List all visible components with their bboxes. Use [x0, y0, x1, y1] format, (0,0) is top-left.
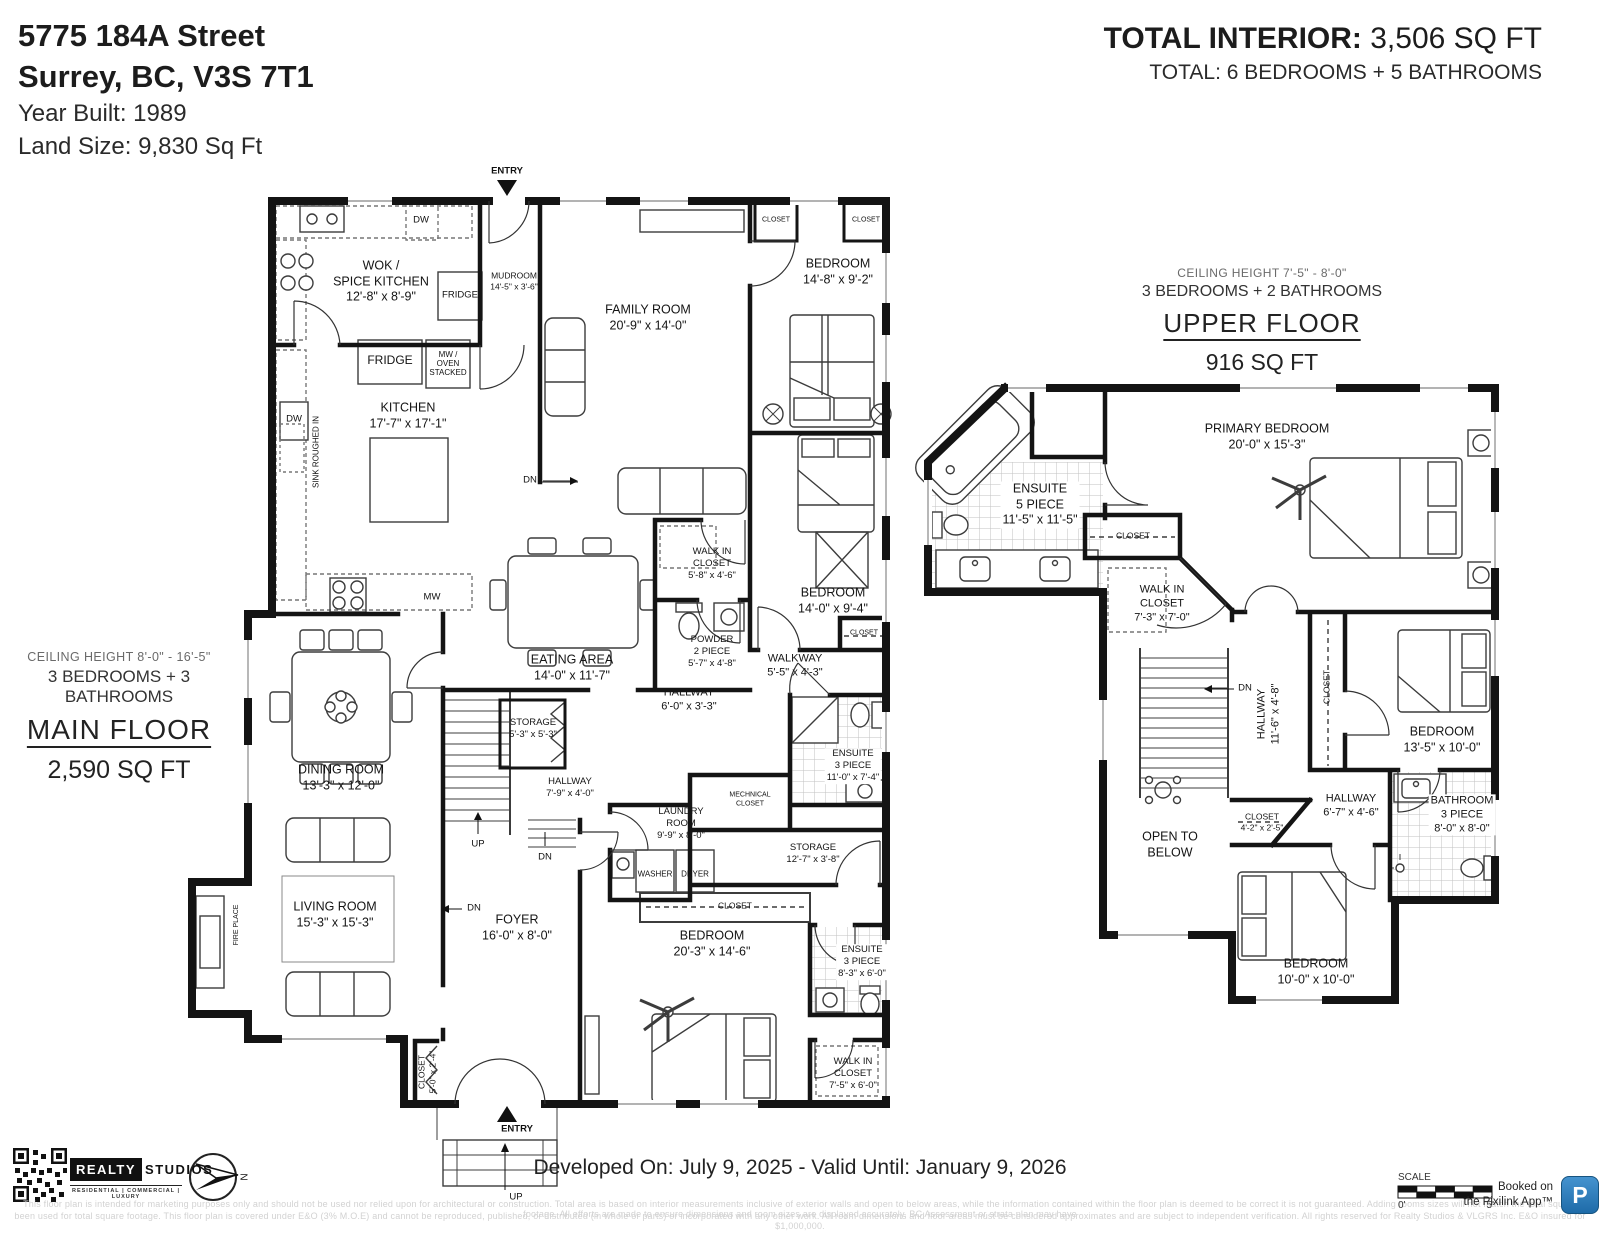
room-label: CLOSET [718, 901, 752, 912]
room-label: MECHNICAL CLOSET [729, 791, 770, 809]
fridge-label: FRIDGE [367, 354, 412, 368]
brand-tagline: RESIDENTIAL | COMMERCIAL | LUXURY [70, 1188, 182, 1200]
room-label: PRIMARY BEDROOM20'-0" x 15'-3" [1205, 421, 1330, 452]
room-label: STORAGE5'-3" x 5'-3" [509, 717, 557, 741]
room-label: CLOSET [852, 217, 880, 226]
brand-name-studios: STUDIOS [145, 1162, 213, 1177]
up-label: UP [471, 840, 484, 851]
room-label: EATING AREA14'-0" x 11'-7" [531, 652, 613, 683]
address-line1: 5775 184A Street [18, 20, 314, 51]
disclaimer-line2: been used for total square footage. This… [10, 1211, 1590, 1231]
address-line2: Surrey, BC, V3S 7T1 [18, 61, 314, 92]
washer-label: WASHER [638, 869, 673, 878]
room-label: BEDROOM10'-0" x 10'-0" [1278, 956, 1355, 987]
room-label: MUDROOM14'-5" x 3'-6" [490, 270, 538, 291]
dn-label: DN [523, 476, 537, 487]
sink-roughed-in-label: SINK ROUGHED IN [311, 416, 320, 488]
total-bed-bath: TOTAL: 6 BEDROOMS + 5 BATHROOMS [1104, 62, 1542, 83]
room-label: ENSUITE 3 PIECE8'-3" x 6'-0" [836, 944, 888, 980]
main-floor-area: 2,590 SQ FT [13, 756, 225, 785]
qr-code [13, 1148, 67, 1202]
room-label: FOYER16'-0" x 8'-0" [482, 912, 552, 943]
compass-icon: N [190, 1154, 248, 1200]
upper-floor-area: 916 SQ FT [1122, 349, 1402, 376]
room-label: CLOSET [762, 217, 790, 226]
room-label: ENSUITE 3 PIECE11'-0" x 7'-4" [825, 748, 881, 784]
room-label: BEDROOM14'-0" x 9'-4" [798, 585, 868, 616]
room-label: HALLWAY7'-9" x 4'-0" [546, 776, 594, 800]
dw-label: DW [413, 216, 429, 227]
main-floor-header: CEILING HEIGHT 8'-0" - 16'-5" 3 BEDROOMS… [13, 650, 225, 785]
floor-plan-drawing: N [0, 0, 1600, 1237]
svg-text:N: N [237, 1173, 248, 1180]
room-label: CLOSET4'-2" x 2'-5" [1241, 811, 1284, 832]
year-built: Year Built: 1989 [18, 102, 314, 126]
pixilink-app-icon: P [1561, 1176, 1599, 1214]
room-label: STORAGE12'-7" x 3'-8" [786, 842, 839, 866]
total-interior-block: TOTAL INTERIOR: 3,506 SQ FT TOTAL: 6 BED… [1104, 24, 1542, 83]
room-label: DINING ROOM13'-3" x 12'-0" [298, 762, 384, 793]
dn-label: DN [1238, 684, 1252, 695]
room-label: BEDROOM20'-3" x 14'-6" [674, 928, 751, 959]
upper-floor-header: CEILING HEIGHT 7'-5" - 8'-0" 3 BEDROOMS … [1122, 266, 1402, 376]
realty-studios-logo: REALTYSTUDIOS RESIDENTIAL | COMMERCIAL |… [70, 1158, 182, 1200]
main-bed-bath: 3 BEDROOMS + 3 BATHROOMS [13, 667, 225, 707]
room-label: LAUNDRY ROOM9'-9" x 8'-0" [657, 806, 705, 842]
land-size: Land Size: 9,830 Sq Ft [18, 135, 314, 159]
brand-name-realty: REALTY [70, 1158, 142, 1181]
room-label: BEDROOM14'-8" x 9'-2" [803, 256, 873, 287]
fireplace-label: FIRE PLACE [233, 905, 241, 946]
room-label: HALLWAY6'-7" x 4'-6" [1323, 792, 1378, 820]
address-block: 5775 184A Street Surrey, BC, V3S 7T1 Yea… [18, 20, 314, 159]
room-label: LIVING ROOM15'-3" x 15'-3" [293, 899, 376, 930]
room-label: HALLWAY6'-0" x 3'-3" [661, 686, 716, 714]
booked-on-text: Booked on the Pixilink App™ [1408, 1180, 1553, 1210]
room-label: CLOSET [850, 630, 878, 639]
room-label: KITCHEN17'-7" x 17'-1" [370, 400, 447, 431]
floor-plan-page: N 5775 184A Street Surrey, BC, V3S 7T1 Y… [0, 0, 1600, 1237]
upper-bed-bath: 3 BEDROOMS + 2 BATHROOMS [1122, 283, 1402, 301]
room-label: WALKWAY5'-5" x 4'-3" [767, 652, 822, 680]
scale-zero: 0' [1398, 1200, 1405, 1211]
room-label: BATHROOM 3 PIECE8'-0" x 8'-0" [1429, 794, 1496, 835]
room-label: BEDROOM13'-5" x 10'-0" [1404, 724, 1481, 755]
room-label: ENSUITE 5 PIECE11'-5" x 11'-5" [1000, 482, 1079, 529]
room-label: CLOSET [1322, 670, 1333, 704]
room-label: WALK IN CLOSET7'-5" x 6'-0" [829, 1056, 877, 1092]
mw-oven-label: MW / OVEN STACKED [429, 350, 466, 378]
upper-floor-title: UPPER FLOOR [1122, 308, 1402, 339]
logo-divider [70, 1185, 182, 1186]
dryer-label: DRYER [681, 869, 709, 878]
room-label: FAMILY ROOM20'-9" x 14'-0" [605, 302, 691, 333]
dn-label: DN [538, 853, 552, 864]
room-label: CLOSET5'-0" x 2'-4" [416, 1051, 437, 1094]
dn-label: DN [467, 904, 481, 915]
room-label: WALK IN CLOSET7'-3" x 7'-0" [1134, 583, 1189, 624]
main-ceiling-height: CEILING HEIGHT 8'-0" - 16'-5" [13, 650, 225, 664]
fridge-label: FRIDGE [442, 291, 478, 302]
room-label: WOK / SPICE KITCHEN12'-8" x 8'-9" [333, 259, 429, 306]
entry-label: ENTRY [491, 167, 523, 178]
main-floor-title: MAIN FLOOR [13, 714, 225, 746]
dw-label: DW [286, 415, 302, 426]
room-label: OPEN TO BELOW [1142, 829, 1198, 860]
developed-valid-dates: Developed On: July 9, 2025 - Valid Until… [400, 1156, 1200, 1180]
room-label: HALLWAY11'-6" x 4'-8" [1255, 684, 1283, 745]
upper-ceiling-height: CEILING HEIGHT 7'-5" - 8'-0" [1122, 266, 1402, 280]
entry-label: ENTRY [501, 1125, 533, 1136]
mw-label: MW [424, 593, 441, 604]
total-interior: TOTAL INTERIOR: 3,506 SQ FT [1104, 24, 1542, 54]
room-label: CLOSET [1116, 531, 1150, 542]
room-label: POWDER 2 PIECE5'-7" x 4'-8" [688, 634, 736, 670]
room-label: WALK IN CLOSET5'-8" x 4'-6" [688, 546, 736, 582]
